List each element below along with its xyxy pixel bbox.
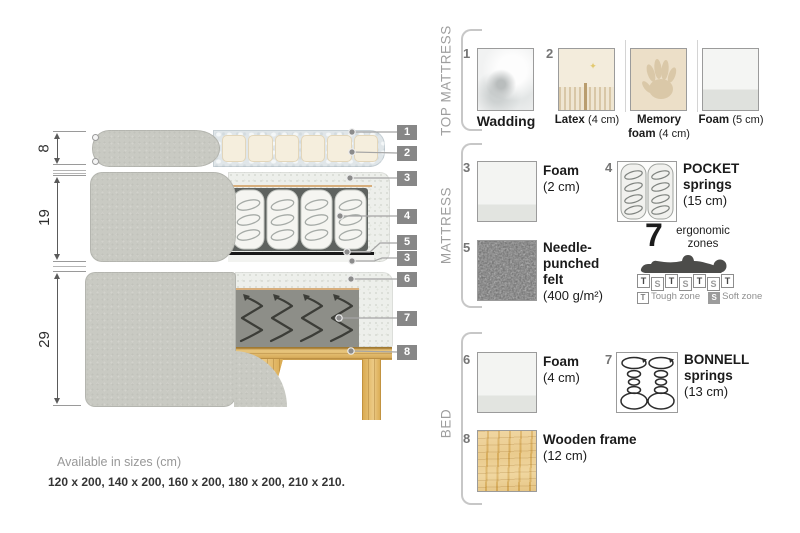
- pocket-name1: POCKET: [683, 161, 739, 177]
- latex-image: ✦: [558, 48, 615, 111]
- soft-zone-key-icon: S: [708, 292, 720, 304]
- latex-block: [222, 135, 246, 162]
- pocket-size: (15 cm): [683, 193, 727, 208]
- dimension-line: [57, 278, 58, 399]
- mattress-cover: [90, 172, 236, 262]
- pocket-springs-image: [617, 161, 677, 222]
- frame-caption: Wooden frame (12 cm): [543, 432, 637, 464]
- pocket-springs-drawing: [618, 162, 676, 221]
- topmattress-cutaway: [213, 130, 385, 167]
- dimension-tick: [53, 175, 86, 176]
- bonnell-name1: BONNELL: [684, 352, 749, 368]
- foam4-image: [477, 352, 537, 413]
- felt-name2: punched: [543, 256, 603, 272]
- zone-box: T: [693, 274, 706, 288]
- pocket-caption: POCKET springs (15 cm): [683, 161, 739, 209]
- felt-texture: [478, 241, 536, 300]
- tough-zone-label: Tough zone: [651, 291, 700, 302]
- zone-box: T: [637, 274, 650, 288]
- felt-size: (400 g/m²): [543, 288, 603, 303]
- section-title-bed: BED: [439, 404, 454, 444]
- foam5-caption: Foam (5 cm): [689, 114, 773, 128]
- guide-line: [53, 170, 86, 171]
- foam5-size: (5 cm): [732, 114, 763, 126]
- callout-8: 8: [397, 345, 417, 360]
- bedbase-cutaway: [235, 272, 393, 347]
- callout-4: 4: [397, 209, 417, 224]
- dimension-29cm: 29: [36, 331, 53, 348]
- section-title-top-mattress: TOP MATTRESS: [439, 21, 454, 141]
- felt-image: [477, 240, 537, 301]
- pocket-name2: springs: [683, 177, 739, 193]
- foam4-caption: Foam (4 cm): [543, 354, 580, 386]
- bonnell-size: (13 cm): [684, 384, 728, 399]
- zone-key: TTough zoneSSoft zone: [637, 291, 762, 304]
- latex-sparkle: ✦: [589, 61, 597, 72]
- cover-snap: [92, 134, 99, 141]
- memory-foam-image: [630, 48, 687, 111]
- soft-zone-label: Soft zone: [722, 291, 762, 302]
- mattress-construction-infographic: 8 19 29: [0, 0, 800, 533]
- callout-1: 1: [397, 125, 417, 140]
- cover-snap: [92, 158, 99, 165]
- item-number-3: 3: [463, 160, 470, 175]
- frame-name: Wooden frame: [543, 432, 637, 448]
- wooden-frame-image: [477, 430, 537, 492]
- mattress-cutaway: [228, 172, 390, 262]
- arrowhead-down: [54, 398, 60, 404]
- wooden-leg-right: [362, 359, 381, 420]
- bonnell-springs-layer: [235, 290, 359, 347]
- foam2-caption: Foam (2 cm): [543, 163, 580, 195]
- topmattress-cover: [92, 130, 220, 167]
- frame-size: (12 cm): [543, 448, 587, 463]
- legend-divider: [625, 40, 626, 112]
- item-number-7: 7: [605, 352, 612, 367]
- memory-foam-name2: foam: [628, 128, 655, 140]
- foam5-name: Foam: [698, 114, 729, 126]
- latex-slit: [584, 83, 587, 110]
- wadding-image: [477, 48, 534, 111]
- dimension-tick: [53, 261, 86, 262]
- callout-5: 5: [397, 235, 417, 250]
- tough-zone-key-icon: T: [637, 292, 649, 304]
- section-title-mattress: MATTRESS: [439, 181, 454, 271]
- bonnell-caption: BONNELL springs (13 cm): [684, 352, 749, 400]
- foam4-name: Foam: [543, 354, 580, 370]
- item-number-8: 8: [463, 431, 470, 446]
- callout-3: 3: [397, 171, 417, 186]
- felt-name3: felt: [543, 272, 603, 288]
- foam4-size: (4 cm): [543, 370, 580, 385]
- latex-block: [275, 135, 299, 162]
- callout-2: 2: [397, 146, 417, 161]
- dimension-8cm: 8: [36, 144, 53, 152]
- legend-divider: [697, 40, 698, 112]
- zone-box: S: [651, 277, 664, 291]
- item-number-4: 4: [605, 160, 612, 175]
- wadding-caption: Wadding: [460, 113, 552, 130]
- dimension-tick: [53, 131, 86, 132]
- hand-imprint: [631, 49, 687, 111]
- item-number-2: 2: [546, 46, 553, 61]
- zone-row: TSTSTST: [637, 274, 735, 292]
- dimension-line: [57, 182, 58, 255]
- memory-foam-size: (4 cm): [659, 128, 690, 140]
- zone-box: S: [707, 277, 720, 291]
- latex-size: (4 cm): [588, 114, 619, 126]
- zones-label1: ergonomic: [672, 225, 734, 237]
- zones-label2: zones: [672, 238, 734, 250]
- callout-7: 7: [397, 311, 417, 326]
- callout-6: 6: [397, 272, 417, 287]
- sizes-title: Available in sizes (cm): [57, 455, 181, 469]
- bedbase-skirt: [85, 272, 236, 407]
- guide-line: [53, 266, 86, 267]
- foam2-image: [477, 161, 537, 222]
- latex-block: [301, 135, 325, 162]
- foam2-name: Foam: [543, 163, 580, 179]
- bonnell-springs-drawing: [617, 353, 677, 412]
- dimension-19cm: 19: [36, 209, 53, 226]
- zone-box: S: [679, 277, 692, 291]
- dimension-tick: [53, 405, 81, 406]
- zone-box: T: [721, 274, 734, 288]
- felt-name1: Needle-: [543, 240, 603, 256]
- pocket-springs-layer: [230, 188, 368, 251]
- latex-block: [327, 135, 351, 162]
- dimension-tick: [53, 271, 86, 272]
- callout-3b: 3: [397, 251, 417, 266]
- dimension-tick: [53, 164, 86, 165]
- bottom-foam-layer: [228, 255, 374, 262]
- item-number-1: 1: [463, 46, 470, 61]
- sizes-list: 120 x 200, 140 x 200, 160 x 200, 180 x 2…: [48, 475, 345, 489]
- latex-block: [354, 135, 378, 162]
- item-number-5: 5: [463, 240, 470, 255]
- guide-line: [53, 173, 86, 174]
- latex-blocks: [222, 135, 378, 162]
- bonnell-name2: springs: [684, 368, 749, 384]
- latex-name: Latex: [555, 114, 585, 126]
- zone-box: T: [665, 274, 678, 288]
- mattress-tape-edge: [228, 185, 372, 187]
- arrowhead-down: [54, 254, 60, 260]
- dimension-line: [57, 138, 58, 160]
- zones-count: 7: [645, 217, 663, 254]
- bonnell-image: [616, 352, 678, 413]
- item-number-6: 6: [463, 352, 470, 367]
- latex-block: [248, 135, 272, 162]
- sleeping-person-silhouette: [638, 252, 732, 276]
- foam5-image: [702, 48, 759, 111]
- felt-caption: Needle- punched felt (400 g/m²): [543, 240, 603, 304]
- foam2-size: (2 cm): [543, 179, 580, 194]
